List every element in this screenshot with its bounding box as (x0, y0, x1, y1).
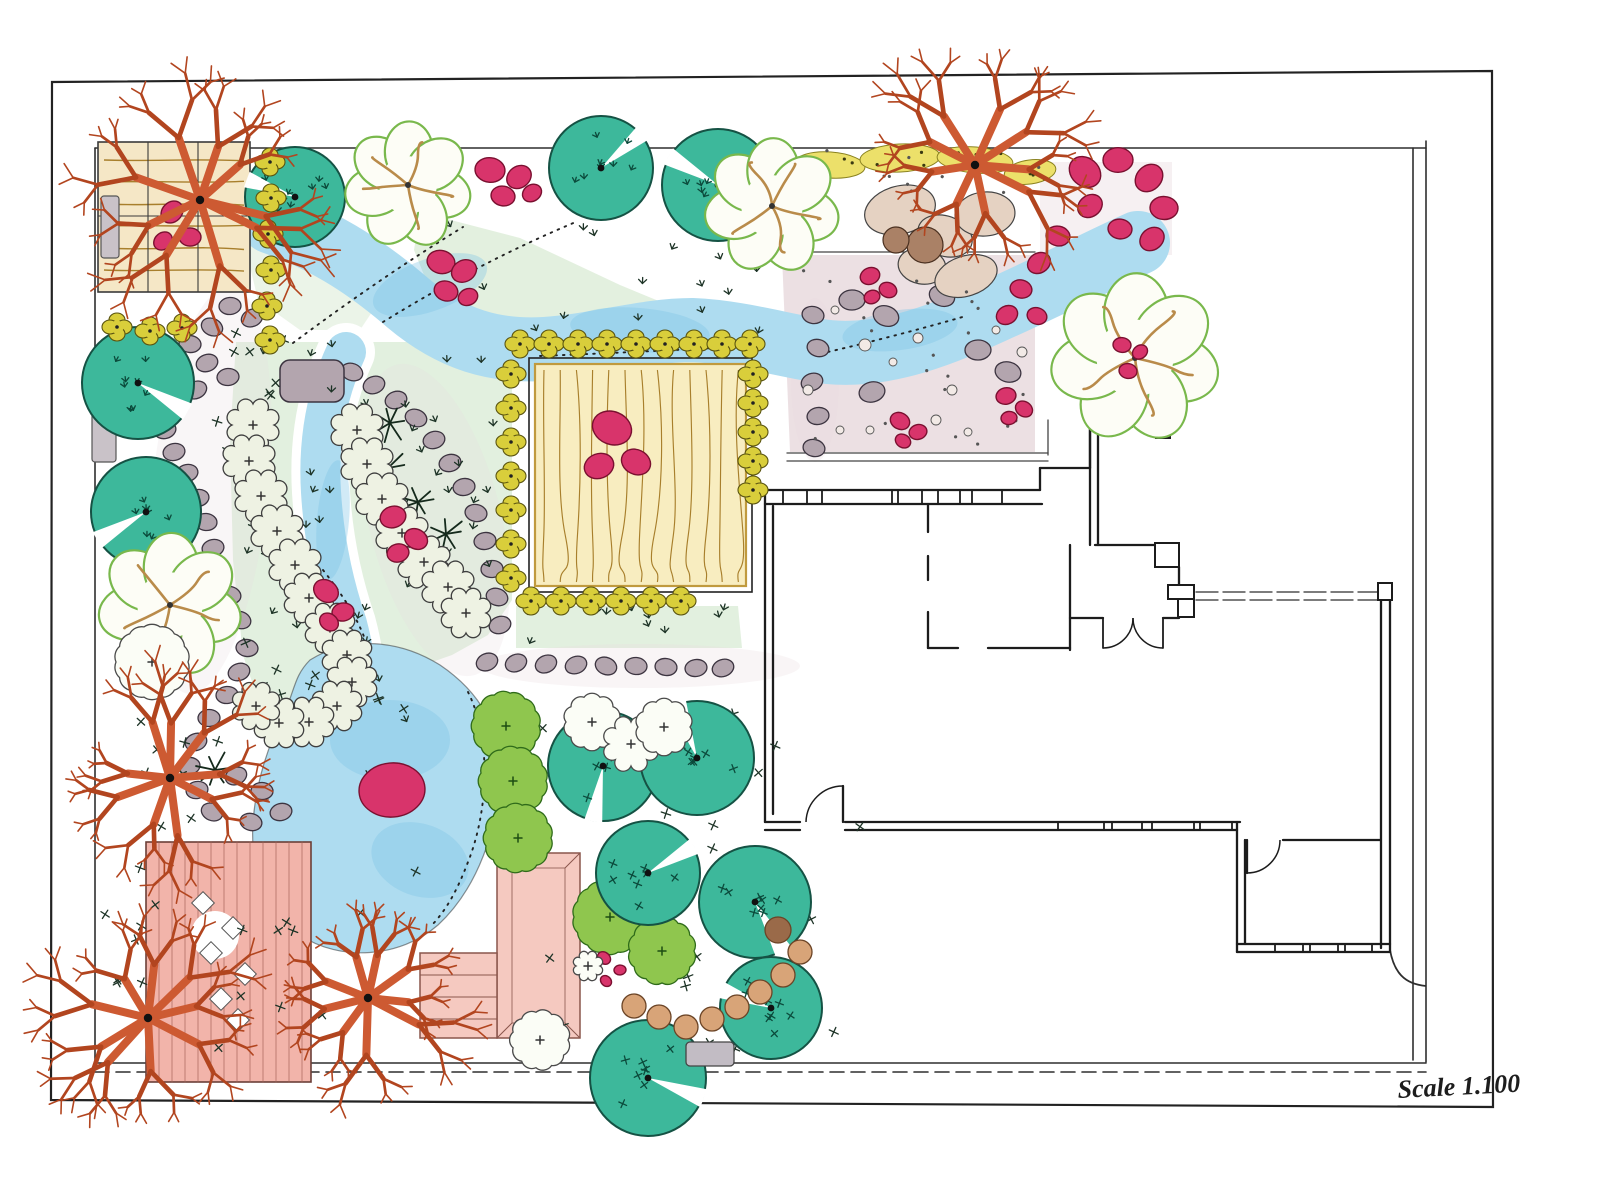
stepping-stone (965, 340, 991, 360)
door-arc (806, 786, 843, 822)
plan-render-root (23, 48, 1493, 1136)
tan-stepping-stone (788, 940, 812, 964)
teal-tree (549, 116, 653, 220)
teal-tree (596, 821, 700, 925)
tan-stepping-stone (765, 917, 791, 943)
deck-surface (146, 842, 311, 1082)
crimson-flower (598, 973, 613, 988)
house-floorplan (765, 420, 1392, 952)
tan-stepping-stone (748, 980, 772, 1004)
crimson-flower (1103, 147, 1133, 172)
stepping-stone (839, 290, 866, 311)
wood-deck (146, 842, 311, 1082)
tan-stepping-stone (674, 1015, 698, 1039)
brown-boulder (883, 227, 909, 253)
stone-bridge (280, 360, 344, 402)
teal-tree (82, 327, 194, 439)
scale-label: Scale 1.100 (1397, 1069, 1521, 1104)
wall-box (1178, 599, 1194, 617)
wash-green-zenbottom (516, 606, 742, 648)
grass-star (196, 752, 228, 784)
garden-plan-page: Scale 1.100 (0, 0, 1600, 1200)
door-arc (1247, 840, 1280, 873)
door-arc (1133, 618, 1163, 648)
driveway-curve (1390, 950, 1426, 986)
wall-box (1378, 583, 1392, 600)
wall-box (1168, 585, 1194, 599)
crimson-flower (474, 156, 506, 184)
tan-stepping-stone (647, 1005, 671, 1029)
door-arc (1103, 618, 1133, 648)
garden-plan-canvas: Scale 1.100 (0, 0, 1600, 1200)
tan-stepping-stone (771, 963, 795, 987)
stone-slab (686, 1042, 734, 1066)
crimson-flower (1149, 196, 1178, 220)
crimson-flower (614, 965, 627, 976)
wall-box (1155, 543, 1179, 567)
tan-stepping-stone (622, 994, 646, 1018)
tan-stepping-stone (725, 995, 749, 1019)
tan-stepping-stone (700, 1007, 724, 1031)
